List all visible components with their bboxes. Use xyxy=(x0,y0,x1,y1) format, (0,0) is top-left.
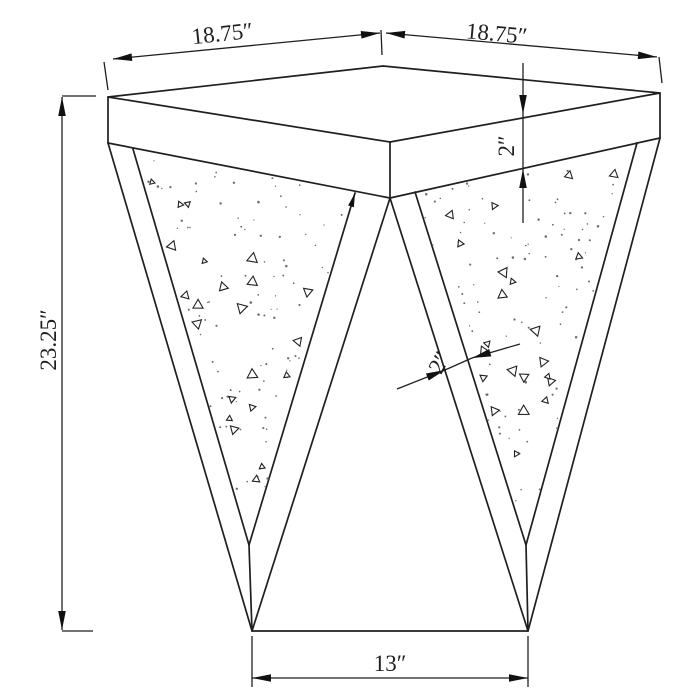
crystal-dot xyxy=(271,309,272,310)
crystal-dot xyxy=(285,206,287,208)
crystal-dot xyxy=(341,214,343,216)
crystal-dot xyxy=(612,184,614,186)
crystal-dot xyxy=(210,405,212,407)
crystal-dot xyxy=(468,185,469,186)
crystal-dot xyxy=(575,336,578,339)
crystal-triangle xyxy=(202,258,207,263)
left-leg-apex-edge xyxy=(249,545,252,631)
crystal-dot xyxy=(469,325,470,326)
crystal-dot xyxy=(195,191,197,193)
center-extension-tick xyxy=(381,30,382,55)
dimension-drawing: 18.75″ 18.75″ 2″ 23.25″ 2″ 13″ xyxy=(0,0,700,700)
dimension-top-left-width: 18.75″ xyxy=(104,18,382,90)
crystal-dot xyxy=(264,261,266,263)
crystal-dot xyxy=(466,182,468,184)
crystal-dot xyxy=(275,295,276,296)
crystal-dot xyxy=(518,409,520,411)
crystal-dot xyxy=(496,257,498,259)
crystal-dot xyxy=(221,275,223,277)
dim-label-overall-height: 23.25″ xyxy=(36,309,61,370)
crystal-dot xyxy=(578,239,580,241)
crystal-dot xyxy=(275,186,276,187)
table-outline xyxy=(108,66,660,631)
crystal-dot xyxy=(555,202,557,204)
slab-bottom-edge xyxy=(108,138,660,198)
crystal-triangle xyxy=(446,210,454,218)
crystal-dot xyxy=(545,297,547,299)
dim-label-leg-frame-width: 2″ xyxy=(423,347,455,377)
crystal-dot xyxy=(265,417,267,419)
crystal-dot xyxy=(581,266,583,268)
crystal-dot xyxy=(245,275,247,277)
crystal-dot xyxy=(527,173,529,175)
crystal-dot xyxy=(257,294,259,296)
crystal-dot xyxy=(217,371,219,373)
crystal-dot xyxy=(570,248,572,250)
crystal-dot xyxy=(482,198,484,200)
crystal-dot xyxy=(239,391,241,393)
left-leg-inner-frame xyxy=(133,149,355,545)
crystal-dot xyxy=(266,477,269,480)
dim-label-top-right-depth: 18.75″ xyxy=(465,18,528,48)
crystal-dot xyxy=(539,488,541,490)
crystal-dot xyxy=(463,222,465,224)
diagram-canvas: 18.75″ 18.75″ 2″ 23.25″ 2″ 13″ xyxy=(0,0,700,700)
crystal-dot xyxy=(221,397,223,399)
crystal-dot xyxy=(236,488,238,490)
crystal-dot xyxy=(511,237,512,238)
crystal-dot xyxy=(260,365,261,366)
right-leg-panel xyxy=(390,138,660,631)
crystal-triangle xyxy=(249,405,256,412)
crystal-triangle xyxy=(520,374,529,382)
crystal-dot xyxy=(271,177,273,179)
crystal-dot xyxy=(234,234,236,236)
crystal-triangle xyxy=(167,241,176,251)
crystal-dot xyxy=(250,301,253,304)
crystal-dot xyxy=(556,427,558,429)
crystal-dot xyxy=(460,232,462,234)
crystal-triangle xyxy=(498,268,507,278)
crystal-triangle xyxy=(226,415,232,420)
crystal-dot xyxy=(273,317,275,319)
dim-label-top-left-width: 18.75″ xyxy=(190,18,254,49)
crystal-dot xyxy=(461,293,463,295)
crystal-dot xyxy=(237,217,239,219)
crystal-triangle xyxy=(247,253,257,263)
crystal-dot xyxy=(576,289,578,291)
crystal-dot xyxy=(177,228,178,229)
crystal-dot xyxy=(520,489,522,491)
crystal-dot xyxy=(477,301,479,303)
crystal-dot xyxy=(298,304,300,306)
crystal-dot xyxy=(569,212,571,214)
crystal-dot xyxy=(266,428,268,430)
crystal-triangle xyxy=(259,463,265,468)
crystal-dot xyxy=(611,193,612,194)
crystal-dot xyxy=(526,441,528,443)
dimension-top-thickness: 2″ xyxy=(494,63,523,223)
crystal-dot xyxy=(219,426,221,428)
crystal-triangle xyxy=(284,372,290,378)
crystal-triangle xyxy=(484,341,490,347)
crystal-dot xyxy=(537,218,539,220)
crystal-dot xyxy=(298,357,300,359)
crystal-dot xyxy=(263,314,265,316)
crystal-dot xyxy=(236,401,237,402)
crystal-dot xyxy=(513,318,515,320)
crystal-dot xyxy=(589,239,591,241)
extension-line xyxy=(659,57,662,83)
crystal-triangle xyxy=(507,366,517,376)
crystal-dot xyxy=(528,327,530,329)
crystal-dot xyxy=(528,253,530,255)
crystal-dot xyxy=(585,252,586,253)
crystal-dot xyxy=(265,363,267,365)
extension-line xyxy=(104,62,108,90)
crystal-triangle xyxy=(542,397,548,404)
crystal-triangle xyxy=(518,405,529,414)
crystal-dot xyxy=(285,265,288,268)
crystal-dot xyxy=(424,217,425,218)
dim-label-top-thickness: 2″ xyxy=(494,135,519,156)
crystal-dot xyxy=(279,236,281,238)
crystal-dot xyxy=(246,481,248,483)
crystal-dot xyxy=(214,176,216,178)
crystal-dot xyxy=(219,202,221,204)
crystal-triangle xyxy=(237,304,247,314)
crystal-triangle xyxy=(576,253,583,259)
crystal-dot xyxy=(161,188,162,189)
crystal-dot xyxy=(257,313,260,316)
crystal-dot xyxy=(489,364,491,366)
crystal-dot xyxy=(498,426,500,428)
crystal-dot xyxy=(169,186,171,188)
crystal-dot xyxy=(552,224,554,226)
crystal-dot xyxy=(157,185,160,188)
crystal-triangle xyxy=(530,326,540,336)
crystal-triangle xyxy=(304,288,313,297)
crystal-dot xyxy=(563,229,564,230)
crystal-dot xyxy=(512,256,515,259)
crystal-dot xyxy=(524,258,527,261)
crystal-dot xyxy=(458,286,460,288)
crystal-dot xyxy=(200,334,202,336)
crystal-dot xyxy=(528,244,529,245)
crystal-dot xyxy=(199,315,201,317)
dimension-line-right xyxy=(472,344,520,358)
crystal-dot xyxy=(425,193,428,196)
crystal-dot xyxy=(499,411,500,412)
crystal-dot xyxy=(564,212,566,214)
crystal-dot xyxy=(287,357,289,359)
crystal-triangle xyxy=(498,290,507,299)
table-top-face xyxy=(108,66,660,142)
crystal-dot xyxy=(294,355,296,357)
crystal-dot xyxy=(463,302,465,304)
crystal-dot xyxy=(265,486,266,487)
crystal-dot xyxy=(212,361,214,363)
crystal-dot xyxy=(432,244,434,246)
crystal-dot xyxy=(499,433,501,435)
crystal-triangle xyxy=(458,240,464,247)
crystal-dot xyxy=(315,245,317,247)
crystal-dot xyxy=(215,325,217,327)
crystal-dot xyxy=(562,311,564,313)
crystal-dot xyxy=(525,245,527,247)
crystal-dot xyxy=(283,259,285,261)
crystal-dot xyxy=(153,160,154,161)
dimension-overall-height: 23.25″ xyxy=(36,96,96,631)
crystal-texture-right-panel xyxy=(424,169,617,501)
crystal-dot xyxy=(233,182,235,184)
crystal-dot xyxy=(561,234,563,236)
crystal-dot xyxy=(515,500,516,501)
crystal-dot xyxy=(556,388,558,390)
crystal-dot xyxy=(434,201,436,203)
dimension-top-right-depth: 18.75″ xyxy=(386,18,662,83)
crystal-dot xyxy=(305,234,306,235)
crystal-dot xyxy=(478,311,480,313)
crystal-dot xyxy=(293,282,295,284)
crystal-dot xyxy=(244,229,245,230)
crystal-dot xyxy=(521,321,523,323)
crystal-dot xyxy=(208,301,210,303)
crystal-dot xyxy=(289,360,290,361)
crystal-triangle xyxy=(220,282,229,291)
crystal-dot xyxy=(557,198,559,200)
crystal-dot xyxy=(557,276,558,277)
crystal-triangle xyxy=(181,291,189,299)
crystal-dot xyxy=(286,370,287,371)
crystal-dot xyxy=(257,201,260,204)
crystal-dot xyxy=(262,427,264,429)
crystal-dot xyxy=(181,220,183,222)
crystal-triangle xyxy=(293,338,301,347)
crystal-dot xyxy=(276,308,277,309)
crystal-dot xyxy=(240,226,242,228)
crystal-triangle xyxy=(510,278,516,284)
dimension-base-width: 13″ xyxy=(252,636,528,687)
right-leg-outer-frame xyxy=(390,138,660,631)
crystal-dot xyxy=(327,272,328,273)
crystal-dot xyxy=(584,212,586,214)
crystal-triangle xyxy=(252,475,259,482)
crystal-triangle xyxy=(491,407,499,416)
crystal-dot xyxy=(567,170,569,172)
crystal-triangle xyxy=(193,299,203,308)
crystal-dot xyxy=(471,330,473,332)
crystal-dot xyxy=(484,223,485,224)
crystal-dot xyxy=(597,225,600,228)
crystal-dot xyxy=(207,302,208,303)
crystal-dot xyxy=(215,172,217,174)
right-leg-inner-frame xyxy=(415,143,637,545)
crystal-dot xyxy=(452,188,454,190)
crystal-dot xyxy=(582,229,584,231)
crystal-dot xyxy=(263,380,265,382)
crystal-dot xyxy=(545,235,548,238)
crystal-dot xyxy=(280,195,282,197)
crystal-dot xyxy=(189,227,191,229)
crystal-dot xyxy=(509,438,510,439)
crystal-dot xyxy=(528,199,530,201)
crystal-dot xyxy=(299,184,301,186)
crystal-dot xyxy=(557,418,558,419)
crystal-triangle xyxy=(247,369,258,378)
crystal-dot xyxy=(469,264,471,266)
crystal-triangle xyxy=(545,373,550,379)
crystal-dot xyxy=(493,232,495,234)
crystal-triangle xyxy=(185,202,191,208)
crystal-dot xyxy=(258,389,260,391)
crystal-dot xyxy=(323,224,324,225)
crystal-dot xyxy=(473,284,474,285)
crystal-dot xyxy=(188,309,190,311)
crystal-triangle xyxy=(192,320,201,329)
crystal-dot xyxy=(486,393,489,396)
crystal-dot xyxy=(565,306,567,308)
crystal-triangle xyxy=(150,179,155,184)
crystal-dot xyxy=(282,275,284,277)
crystal-dot xyxy=(265,441,267,443)
crystal-dot xyxy=(260,235,262,237)
crystal-dot xyxy=(545,256,547,258)
crystal-dot xyxy=(504,415,506,417)
left-leg-inner-edge-arrow-mark xyxy=(348,193,355,207)
crystal-dot xyxy=(204,319,206,321)
crystal-dot xyxy=(560,323,562,325)
dimension-leg-frame-width: 2″ xyxy=(397,344,520,389)
crystal-dot xyxy=(240,429,242,431)
crystal-triangle xyxy=(609,169,618,177)
crystal-dot xyxy=(540,342,542,344)
crystal-dot xyxy=(468,209,470,211)
crystal-triangle xyxy=(229,396,236,403)
crystal-dot xyxy=(603,216,605,218)
crystal-triangle xyxy=(230,426,239,435)
crystal-triangle xyxy=(178,201,184,207)
crystal-dot xyxy=(275,395,277,397)
crystal-triangle xyxy=(492,203,498,210)
crystal-triangle xyxy=(540,358,549,367)
left-leg-panel xyxy=(108,143,390,631)
dim-label-base-width: 13″ xyxy=(374,651,407,676)
crystal-dot xyxy=(230,389,232,391)
crystal-dot xyxy=(558,286,559,287)
crystal-triangle xyxy=(565,171,573,179)
crystal-triangle xyxy=(480,375,487,382)
crystal-dot xyxy=(587,223,589,225)
crystal-dot xyxy=(273,276,274,277)
crystal-dot xyxy=(147,181,149,183)
crystal-dot xyxy=(253,219,254,220)
crystal-dot xyxy=(488,419,489,420)
crystal-triangle xyxy=(247,276,257,285)
crystal-dot xyxy=(552,394,554,396)
crystal-dot xyxy=(322,267,323,268)
crystal-dot xyxy=(187,227,189,229)
crystal-dot xyxy=(195,182,197,184)
crystal-dot xyxy=(272,348,274,350)
crystal-dot xyxy=(440,198,442,200)
crystal-triangle xyxy=(515,451,520,457)
right-leg-apex-edge xyxy=(526,545,528,631)
crystal-dot xyxy=(506,336,507,337)
crystal-dot xyxy=(225,426,227,428)
crystal-dot xyxy=(518,429,520,431)
crystal-dot xyxy=(588,281,590,283)
crystal-dot xyxy=(299,214,300,215)
crystal-dot xyxy=(592,290,594,292)
